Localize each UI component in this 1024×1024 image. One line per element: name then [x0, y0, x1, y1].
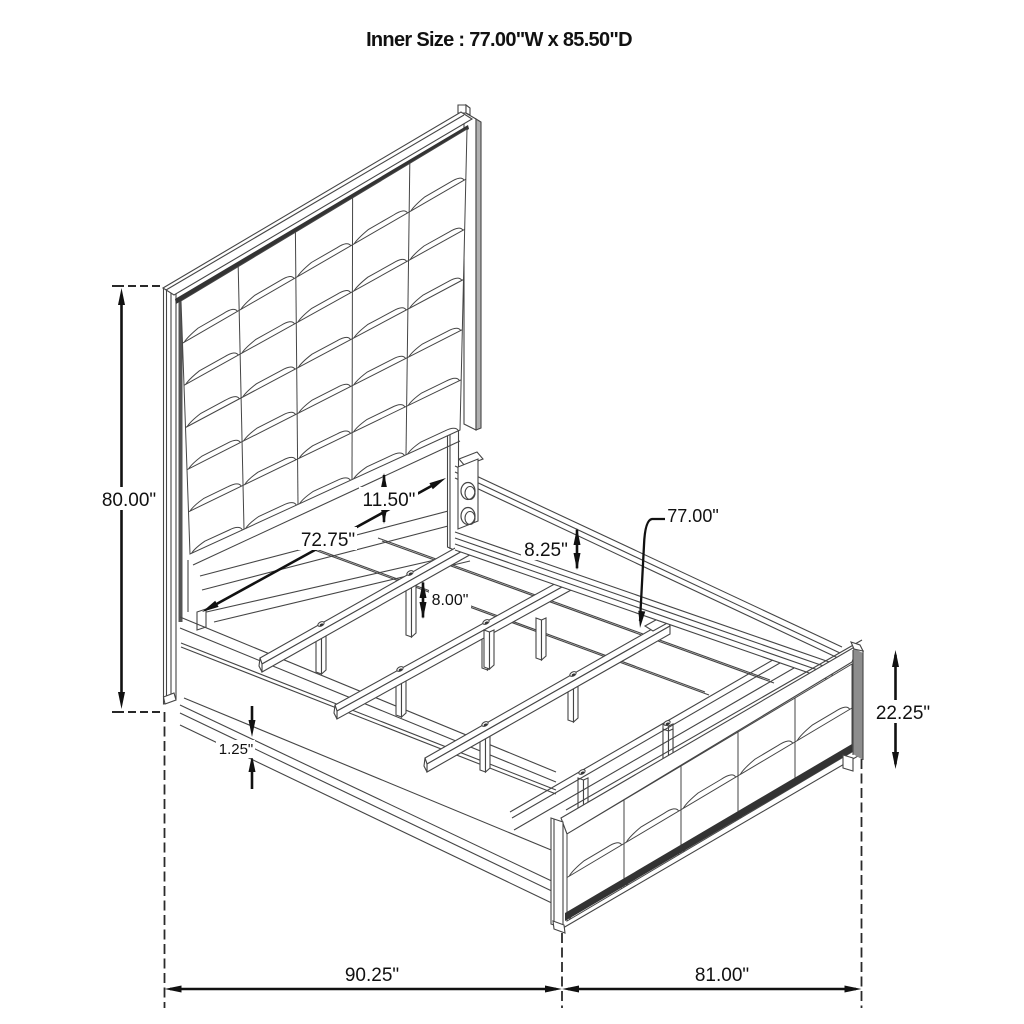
- svg-text:90.25": 90.25": [345, 965, 399, 986]
- svg-text:81.00": 81.00": [695, 965, 749, 986]
- svg-text:80.00": 80.00": [102, 490, 156, 511]
- svg-text:77.00": 77.00": [667, 506, 718, 526]
- svg-text:Inner Size : 77.00"W x 85.50"D: Inner Size : 77.00"W x 85.50"D: [366, 29, 632, 51]
- svg-text:1.25": 1.25": [219, 741, 254, 758]
- svg-text:72.75": 72.75": [301, 530, 355, 551]
- svg-text:11.50": 11.50": [363, 490, 416, 511]
- svg-text:8.00": 8.00": [432, 592, 469, 609]
- svg-text:8.25": 8.25": [524, 540, 568, 561]
- svg-text:22.25": 22.25": [876, 703, 930, 724]
